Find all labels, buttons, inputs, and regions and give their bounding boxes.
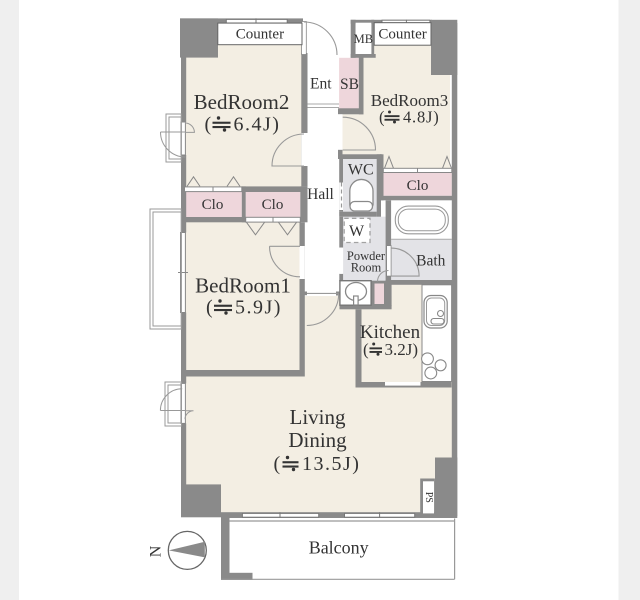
svg-text:(: ( (274, 453, 281, 475)
svg-text:Living: Living (290, 405, 346, 429)
svg-text:(: ( (379, 107, 385, 126)
svg-text:6.4J): 6.4J) (234, 113, 281, 135)
svg-text:(: ( (205, 113, 212, 135)
svg-text:BedRoom1: BedRoom1 (195, 273, 291, 297)
svg-text:Hall: Hall (307, 186, 334, 203)
svg-text:WC: WC (348, 161, 374, 178)
svg-text:3.2J): 3.2J) (385, 340, 419, 359)
svg-text:(: ( (363, 340, 369, 359)
svg-text:Balcony: Balcony (309, 537, 369, 557)
svg-text:(: ( (206, 296, 213, 318)
svg-text:MB: MB (354, 32, 373, 46)
svg-text:4.8J): 4.8J) (403, 107, 440, 126)
svg-text:Counter: Counter (236, 27, 284, 43)
svg-text:Clo: Clo (262, 197, 284, 213)
svg-text:Clo: Clo (202, 197, 224, 213)
svg-text:Clo: Clo (407, 178, 429, 194)
svg-text:Dining: Dining (288, 428, 347, 452)
svg-text:PS: PS (423, 492, 434, 503)
svg-text:5.9J): 5.9J) (235, 296, 282, 318)
svg-text:Bath: Bath (416, 253, 446, 270)
svg-text:N: N (148, 545, 165, 557)
svg-text:SB: SB (340, 76, 359, 93)
svg-text:BedRoom2: BedRoom2 (194, 90, 290, 114)
svg-text:13.5J): 13.5J) (302, 453, 360, 475)
svg-text:Room: Room (351, 260, 382, 274)
svg-text:W: W (349, 223, 365, 240)
svg-text:Counter: Counter (378, 27, 426, 43)
svg-text:Ent: Ent (310, 76, 332, 93)
